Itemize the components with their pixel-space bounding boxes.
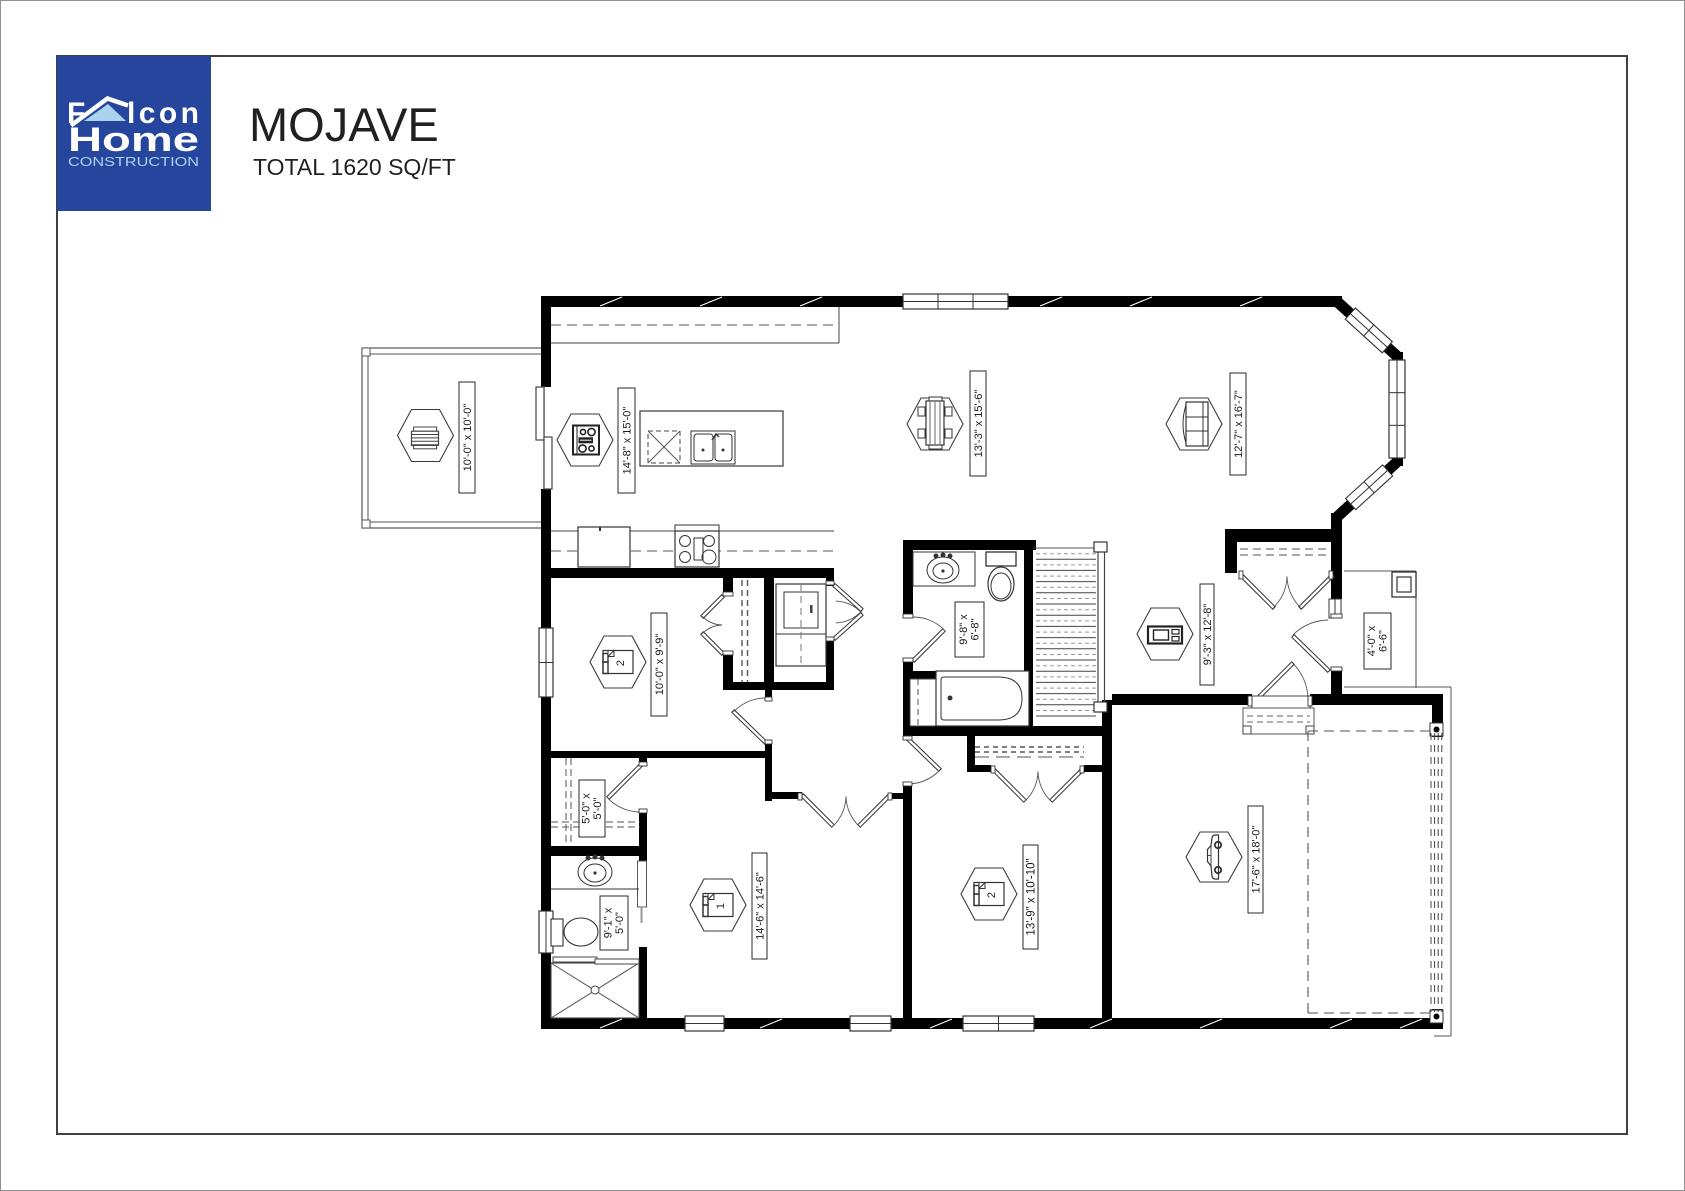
svg-text:2: 2 [986, 892, 998, 898]
svg-text:6'-6": 6'-6" [1378, 630, 1390, 652]
svg-text:2: 2 [615, 660, 627, 666]
svg-text:MOJAVE: MOJAVE [249, 98, 439, 151]
svg-text:TOTAL 1620 SQ/FT: TOTAL 1620 SQ/FT [253, 154, 456, 180]
svg-text:5'-0": 5'-0" [592, 797, 604, 819]
svg-text:5'-0": 5'-0" [614, 912, 626, 934]
svg-text:1: 1 [715, 903, 727, 909]
svg-text:4'-0" x: 4'-0" x [1366, 625, 1378, 656]
svg-text:12'-7" x 16'-7": 12'-7" x 16'-7" [1233, 390, 1245, 458]
svg-text:10'-0" x 10'-0": 10'-0" x 10'-0" [462, 404, 474, 472]
svg-text:9'-8" x: 9'-8" x [958, 614, 970, 645]
svg-text:13'-9" x 10'-10": 13'-9" x 10'-10" [1026, 858, 1038, 935]
svg-text:CONSTRUCTION: CONSTRUCTION [68, 154, 199, 169]
svg-text:6'-8": 6'-8" [970, 618, 982, 640]
svg-text:9'-3" x 12'-8": 9'-3" x 12'-8" [1202, 604, 1214, 666]
svg-text:14'-6" x 14'-6": 14'-6" x 14'-6" [755, 872, 767, 940]
svg-text:13'-3" x 15'-6": 13'-3" x 15'-6" [973, 390, 985, 458]
svg-text:10'-0" x 9'-9": 10'-0" x 9'-9" [654, 634, 666, 696]
svg-text:14'-8" x 15'-0": 14'-8" x 15'-0" [622, 407, 634, 475]
svg-text:5'-0" x: 5'-0" x [581, 793, 593, 824]
svg-text:9'-1" x: 9'-1" x [603, 907, 615, 938]
svg-text:17'-6" x 18'-0": 17'-6" x 18'-0" [1251, 826, 1263, 894]
